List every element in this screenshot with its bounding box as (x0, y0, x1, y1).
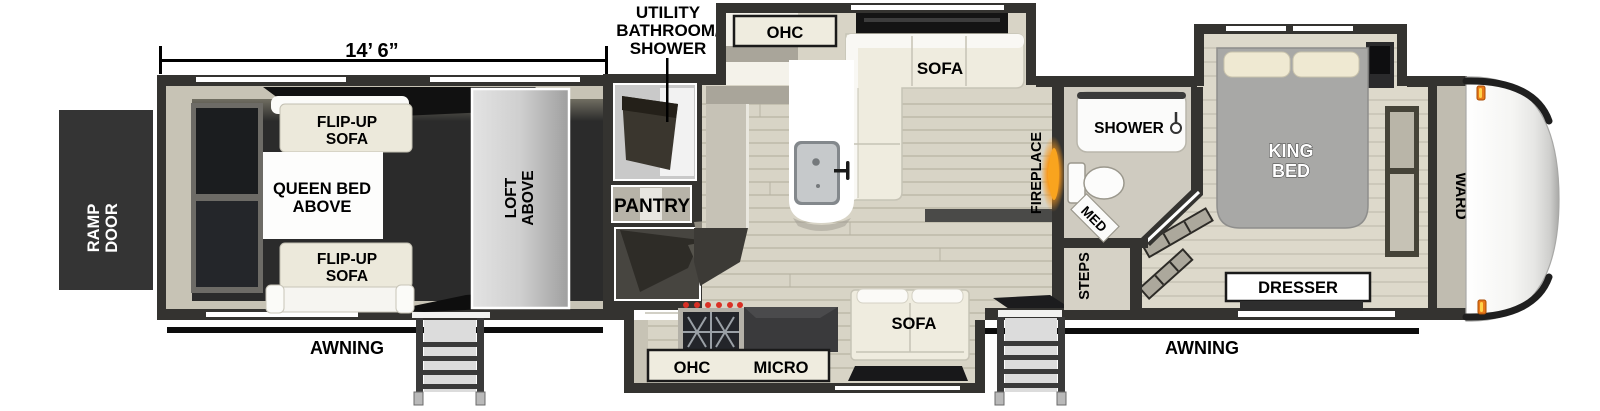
svg-text:UTILITY: UTILITY (636, 3, 701, 22)
svg-text:KING: KING (1269, 141, 1314, 161)
svg-text:RAMP: RAMP (85, 204, 103, 253)
svg-text:DRESSER: DRESSER (1258, 279, 1338, 297)
svg-text:MICRO: MICRO (754, 359, 809, 377)
svg-text:PANTRY: PANTRY (614, 196, 690, 217)
svg-text:BATHROOM/: BATHROOM/ (616, 21, 720, 40)
svg-text:STEPS: STEPS (1077, 252, 1093, 300)
svg-text:SHOWER: SHOWER (1094, 120, 1164, 137)
svg-text:FLIP-UP: FLIP-UP (317, 251, 377, 268)
svg-text:AWNING: AWNING (310, 338, 384, 358)
svg-text:SOFA: SOFA (326, 268, 368, 285)
svg-text:OHC: OHC (767, 24, 804, 42)
svg-text:OHC: OHC (674, 359, 711, 377)
svg-text:FIREPLACE: FIREPLACE (1029, 132, 1045, 215)
svg-text:BED: BED (1272, 161, 1310, 181)
svg-text:SOFA: SOFA (917, 59, 963, 78)
svg-text:DOOR: DOOR (103, 203, 121, 253)
svg-text:LOFT: LOFT (503, 177, 520, 218)
svg-text:ABOVE: ABOVE (293, 198, 352, 216)
svg-text:SOFA: SOFA (326, 131, 368, 148)
svg-text:FLIP-UP: FLIP-UP (317, 114, 377, 131)
svg-text:14’ 6”: 14’ 6” (345, 40, 398, 62)
svg-text:QUEEN BED: QUEEN BED (273, 180, 371, 198)
svg-text:SOFA: SOFA (892, 315, 937, 333)
svg-text:ABOVE: ABOVE (520, 170, 537, 225)
svg-text:SHOWER: SHOWER (630, 39, 707, 58)
svg-text:AWNING: AWNING (1165, 338, 1239, 358)
